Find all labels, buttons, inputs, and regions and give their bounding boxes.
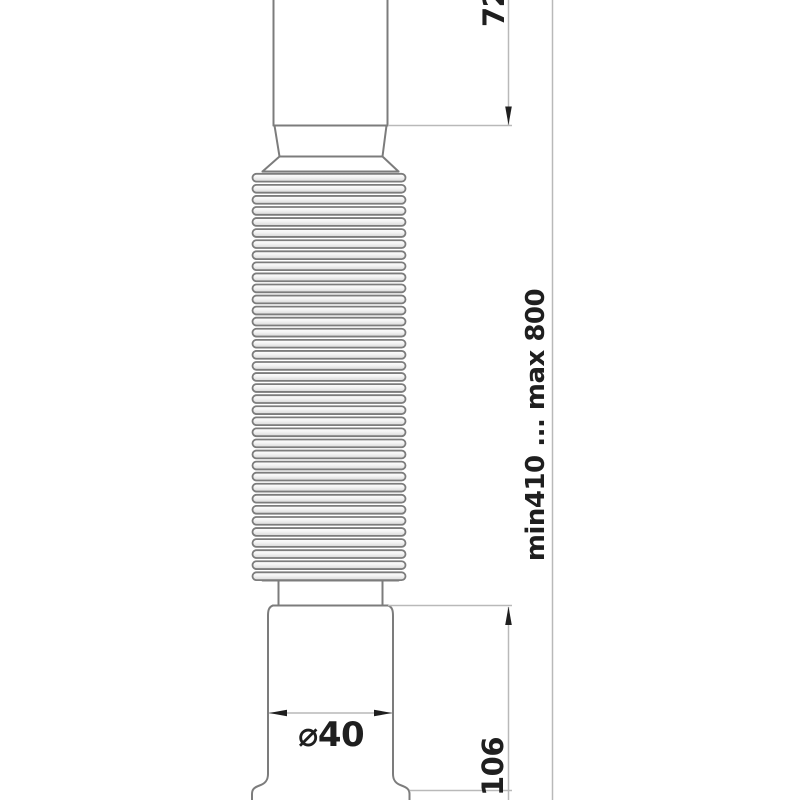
outlet-diameter-label: ⌀40 (298, 715, 364, 755)
arrowhead-up-outlet (505, 607, 512, 626)
outlet-pipe-right-wall (388, 606, 410, 800)
collar-left-wall (275, 126, 280, 157)
outlet-length-label: 106 (476, 737, 510, 796)
inlet-length-label: 72 (477, 0, 511, 27)
corrugated-hose-section (253, 174, 406, 580)
collar-right-wall (383, 126, 387, 157)
arrowhead-down-inlet (505, 107, 512, 126)
arrowhead-right-diameter (374, 710, 392, 717)
technical-drawing-canvas: 72 min410 ... max 800 ⌀40 106 (0, 0, 800, 800)
flare-left-wall (263, 157, 280, 172)
outlet-pipe-left-wall (252, 606, 273, 800)
overall-length-label: min410 ... max 800 (521, 289, 551, 561)
flare-right-wall (383, 157, 399, 172)
arrowhead-left-diameter (269, 710, 287, 717)
hose-outline (252, 0, 410, 800)
